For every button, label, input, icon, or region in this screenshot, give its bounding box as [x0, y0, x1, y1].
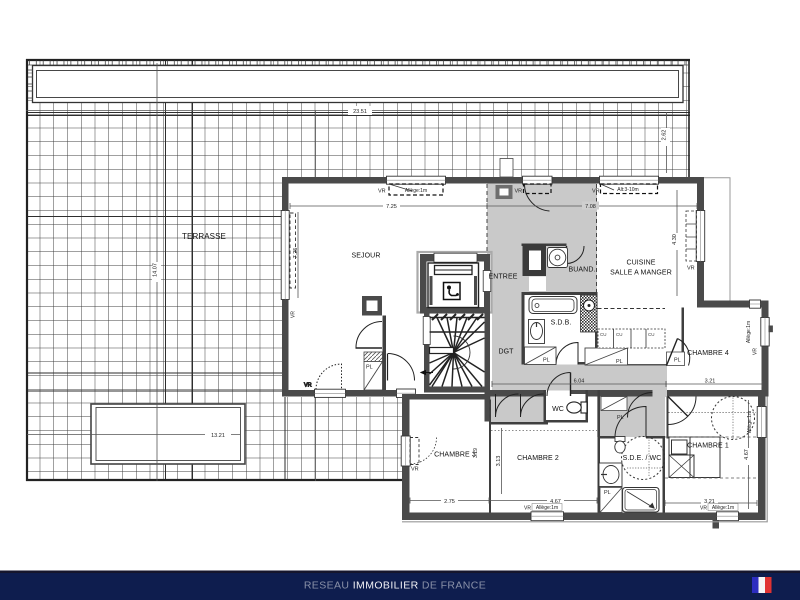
svg-text:S.D.B.: S.D.B.	[551, 320, 572, 327]
svg-text:CUISINE: CUISINE	[626, 260, 655, 267]
svg-text:4.30: 4.30	[672, 234, 678, 245]
svg-text:23.51: 23.51	[353, 109, 367, 115]
svg-text:13.21: 13.21	[211, 433, 225, 439]
svg-text:3.19: 3.19	[473, 448, 479, 458]
svg-text:ENTREE: ENTREE	[489, 274, 518, 281]
svg-text:PL: PL	[616, 359, 623, 365]
svg-text:4.67: 4.67	[744, 449, 750, 460]
svg-text:CU: CU	[616, 332, 623, 337]
svg-text:VR: VR	[304, 383, 312, 389]
svg-text:6.04: 6.04	[574, 379, 585, 385]
svg-text:VR: VR	[524, 506, 531, 512]
svg-text:CHAMBRE 4: CHAMBRE 4	[687, 350, 729, 357]
svg-text:S.D.E. / WC: S.D.E. / WC	[623, 455, 662, 462]
svg-text:PL: PL	[543, 358, 550, 364]
svg-text:CU: CU	[648, 332, 655, 337]
svg-text:PL: PL	[674, 358, 681, 364]
svg-text:VR: VR	[515, 189, 523, 195]
svg-text:TERRASSE: TERRASSE	[182, 232, 226, 241]
svg-text:7.08: 7.08	[585, 204, 596, 210]
svg-text:VR: VR	[753, 348, 759, 355]
svg-text:SALLE A MANGER: SALLE A MANGER	[610, 270, 672, 277]
svg-text:Allège:1m: Allège:1m	[405, 188, 427, 194]
svg-text:CHAMBRE 2: CHAMBRE 2	[517, 455, 559, 462]
svg-text:VR: VR	[700, 506, 707, 512]
svg-text:PL: PL	[604, 490, 611, 496]
svg-text:DGT: DGT	[498, 349, 514, 356]
svg-text:Allège:1m: Allège:1m	[747, 411, 753, 433]
svg-text:CU: CU	[600, 332, 607, 337]
svg-text:3.21: 3.21	[705, 379, 716, 385]
svg-text:BUAND.: BUAND.	[568, 267, 595, 274]
svg-text:7.25: 7.25	[293, 248, 299, 259]
svg-text:Allège:1m: Allège:1m	[536, 505, 558, 511]
svg-text:SEJOUR: SEJOUR	[352, 253, 381, 260]
svg-text:Allège:1m: Allège:1m	[746, 321, 752, 343]
svg-text:RESEAU IMMOBILIER DE FRANCE: RESEAU IMMOBILIER DE FRANCE	[304, 580, 486, 592]
svg-text:2.75: 2.75	[444, 499, 455, 505]
svg-text:CHAMBRE 3: CHAMBRE 3	[434, 452, 476, 459]
svg-text:Allège:1m: Allège:1m	[712, 505, 734, 511]
svg-text:VR: VR	[411, 467, 419, 473]
svg-text:2.62: 2.62	[662, 130, 668, 141]
svg-text:VR: VR	[687, 266, 695, 272]
svg-text:VR: VR	[291, 311, 297, 318]
svg-text:3.13: 3.13	[496, 456, 502, 467]
svg-text:14.07: 14.07	[153, 263, 159, 277]
svg-text:CHAMBRE 1: CHAMBRE 1	[687, 443, 729, 450]
svg-text:Alt:3-10m: Alt:3-10m	[617, 187, 638, 193]
svg-text:WC: WC	[552, 406, 564, 413]
svg-text:7.25: 7.25	[386, 204, 397, 210]
svg-text:PL: PL	[617, 415, 624, 421]
svg-text:VR: VR	[378, 189, 386, 195]
svg-text:PL: PL	[366, 365, 373, 371]
